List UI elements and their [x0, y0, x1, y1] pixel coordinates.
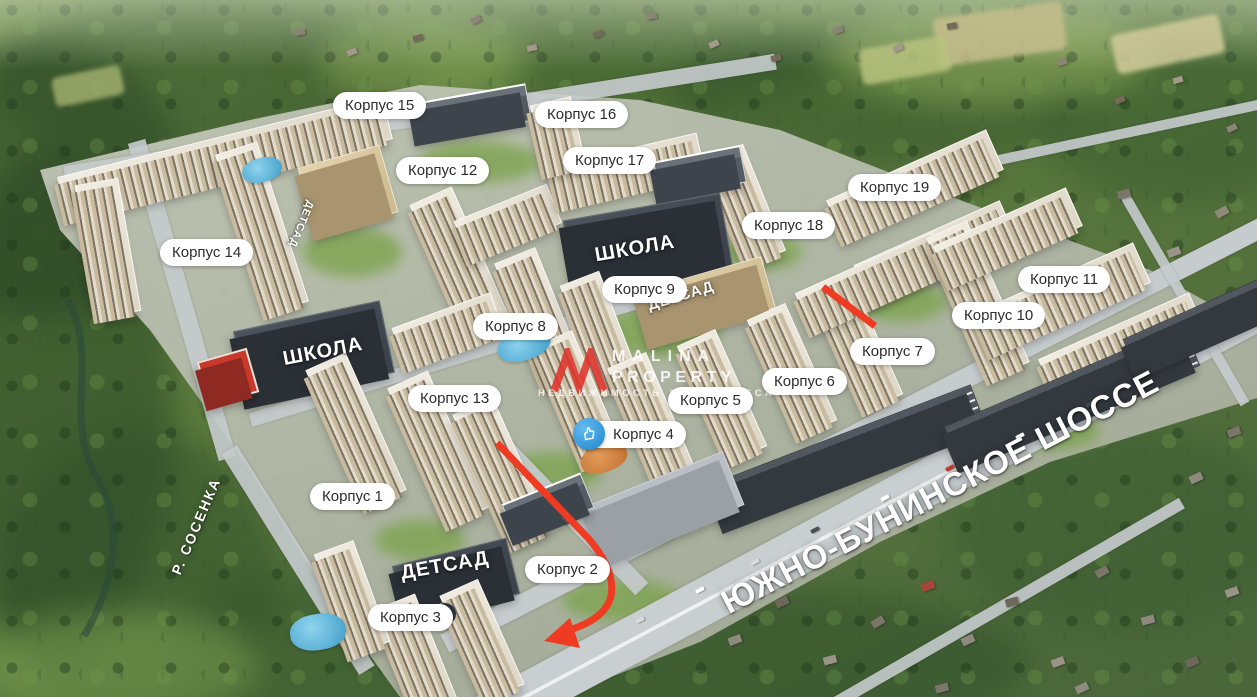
building-label-korpus-11[interactable]: Корпус 11: [1018, 266, 1110, 293]
selected-marker: [573, 418, 605, 450]
building-label-korpus-15[interactable]: Корпус 15: [333, 92, 426, 119]
building-label-korpus-5[interactable]: Корпус 5: [668, 387, 753, 414]
building-label-korpus-4[interactable]: Корпус 4: [577, 421, 686, 448]
building-label-korpus-1[interactable]: Корпус 1: [310, 483, 395, 510]
building-label-korpus-3[interactable]: Корпус 3: [368, 604, 453, 631]
building-label-korpus-12[interactable]: Корпус 12: [396, 157, 489, 184]
thumbs-up-icon: [579, 424, 599, 444]
building-label-korpus-14[interactable]: Корпус 14: [160, 239, 253, 266]
masterplan-map: MALINA PROPERTY НЕДВИЖИМОСТЬ ДЛЯ БИЗНЕСА…: [0, 0, 1257, 697]
building-label-korpus-6[interactable]: Корпус 6: [762, 368, 847, 395]
building-label-korpus-16[interactable]: Корпус 16: [535, 101, 628, 128]
building-label-korpus-8[interactable]: Корпус 8: [473, 313, 558, 340]
building-label-korpus-2[interactable]: Корпус 2: [525, 556, 610, 583]
building-label-korpus-17[interactable]: Корпус 17: [563, 147, 656, 174]
building-label-korpus-18[interactable]: Корпус 18: [742, 212, 835, 239]
building-label-korpus-10[interactable]: Корпус 10: [952, 302, 1045, 329]
building-label-korpus-19[interactable]: Корпус 19: [848, 174, 941, 201]
building-label-korpus-13[interactable]: Корпус 13: [408, 385, 501, 412]
building-label-korpus-7[interactable]: Корпус 7: [850, 338, 935, 365]
building-label-text: Корпус 4: [613, 426, 674, 443]
building-label-korpus-9[interactable]: Корпус 9: [602, 276, 687, 303]
